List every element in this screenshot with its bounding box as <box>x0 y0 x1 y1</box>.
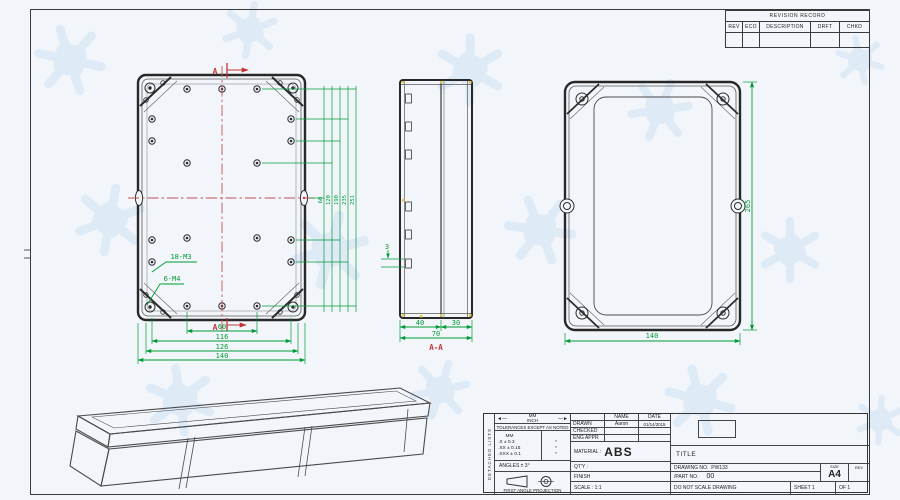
sheet-label: SHEET 1 <box>791 482 836 494</box>
title-label: TITLE <box>671 446 869 464</box>
logo-box <box>698 420 736 438</box>
size-value: A4 <box>828 469 841 480</box>
section-letter-top: A <box>213 67 218 76</box>
lid-latches <box>560 199 745 213</box>
border-centering-marks <box>24 250 30 258</box>
dim-140: 140 <box>216 352 229 360</box>
material-value: ABS <box>604 445 632 459</box>
part-no-label: /PART NO. <box>674 474 698 480</box>
tol-row-2: .XX ± 0.15 <box>498 446 521 452</box>
front-side-dims: 60 120 190 235 251 <box>262 86 356 312</box>
name-header: NAME <box>605 414 639 421</box>
scale-label: SCALE : 1:1 <box>571 482 671 494</box>
tol-mark-2: * <box>555 446 557 452</box>
eng-appr-name-cell <box>605 435 639 442</box>
side-dim-4: 251 <box>350 195 356 205</box>
angles-tolerance: ANGLES ± 3° <box>495 461 571 472</box>
revision-record-title: REVISION RECORD <box>726 11 869 22</box>
drft-col-header: DRFT <box>811 22 840 32</box>
logo-area <box>671 414 869 446</box>
units-arrow-right: —► <box>558 416 568 422</box>
date-header: DATE <box>639 414 671 421</box>
drawn-name: Aaron <box>605 421 639 428</box>
side-dim-0: 60 <box>318 197 324 204</box>
do-not-scale-note: DO NOT SCALE DRAWING <box>671 482 791 494</box>
dim-116: 116 <box>216 333 229 341</box>
holes-label: 18-M3 <box>170 253 191 261</box>
drawing-sheet: A A 18-M3 6-M4 <box>0 0 900 500</box>
title-block-side-label: DETACHED LISTS <box>487 428 492 480</box>
section-view: 3 40 30 70 A-A <box>381 80 472 352</box>
hatch-dots <box>402 81 472 318</box>
tol-mark-3: * <box>555 452 557 458</box>
checked-date-cell <box>639 428 671 435</box>
drawn-date: 01/14/2015 <box>639 421 671 428</box>
dim-3: 3 <box>385 243 389 251</box>
side-dim-2: 190 <box>334 195 340 205</box>
eco-col-header: ECO <box>743 22 760 32</box>
description-empty-cell <box>760 33 811 47</box>
clip-tabs <box>406 94 412 268</box>
dim-40: 40 <box>416 319 424 327</box>
rev-label: REV <box>849 464 869 482</box>
chkd-empty-cell <box>840 33 869 47</box>
first-angle-projection-symbol <box>505 475 561 488</box>
approval-blank-header <box>571 414 605 421</box>
hole-callouts <box>147 262 197 305</box>
checked-label: CHECKED <box>571 428 605 435</box>
drawing-no-label: DRAWING NO. <box>674 465 708 471</box>
revision-record-table: REVISION RECORD REV ECO DESCRIPTION DRFT… <box>725 10 870 48</box>
lid-view: 265 140 <box>560 82 757 345</box>
unit-inch: INCH <box>527 418 538 423</box>
section-bottom-dims: 40 30 70 A-A <box>400 319 472 352</box>
rev-empty-cell <box>726 33 743 47</box>
drawing-no-value: PW133 <box>711 465 727 471</box>
checked-name-cell <box>605 428 639 435</box>
dim-265: 265 <box>744 200 752 213</box>
dim-30: 30 <box>452 319 460 327</box>
side-dim-1: 120 <box>326 195 332 205</box>
section-label: A-A <box>429 343 443 352</box>
front-view: A A 18-M3 6-M4 <box>128 63 356 364</box>
material-label: MATERIAL : <box>574 449 601 455</box>
dim-60: 60 <box>218 323 226 331</box>
tolerance-note: TOLERANCES EXCEPT AS NOTED <box>495 424 571 431</box>
tol-row-3: .XXX ± 0.1 <box>498 452 521 458</box>
chkd-col-header: CHKD <box>840 22 869 32</box>
centerlines <box>128 66 315 331</box>
sheet-of-label: OF 1 <box>836 482 869 494</box>
projection-label: FIRST ANGLE PROJECTION <box>504 488 562 493</box>
units-arrow-left: ◄— <box>497 416 507 422</box>
rev-col-header: REV <box>726 22 743 32</box>
finish-label: FINISH <box>571 472 671 482</box>
dim-140-lid: 140 <box>646 332 659 340</box>
tol-mark-1: * <box>555 440 557 446</box>
eng-appr-date-cell <box>639 435 671 442</box>
eco-empty-cell <box>743 33 760 47</box>
dim-70: 70 <box>432 330 440 338</box>
dim-126: 126 <box>216 343 229 351</box>
lid-corner-screws <box>576 93 729 319</box>
bosses-label: 6-M4 <box>164 275 181 283</box>
title-block: DETACHED LISTS ◄— MM INCH —► TOLERANCES … <box>483 413 868 493</box>
eng-appr-label: ENG APPR <box>571 435 605 442</box>
side-dim-3: 235 <box>342 195 348 205</box>
drawn-label: DRAWN <box>571 421 605 428</box>
description-col-header: DESCRIPTION <box>760 22 811 32</box>
drft-empty-cell <box>811 33 840 47</box>
qty-label: QT'Y : <box>571 462 671 472</box>
isometric-view <box>70 388 430 489</box>
part-no-value: 00 <box>706 473 714 480</box>
